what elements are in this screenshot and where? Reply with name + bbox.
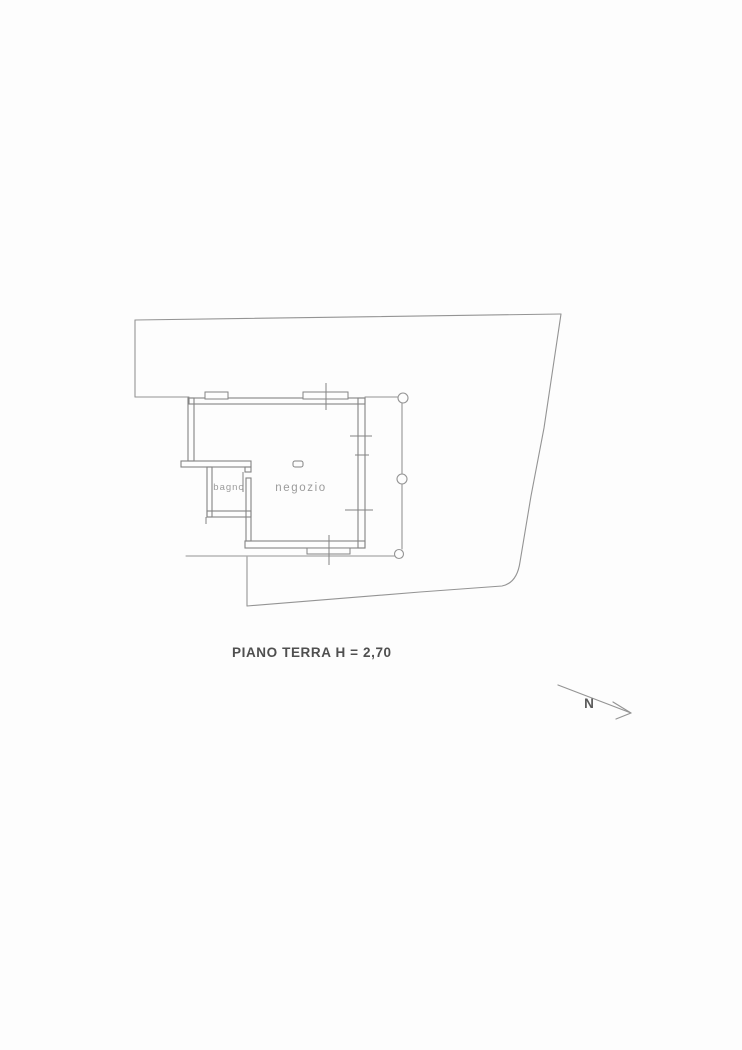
boundary-right-and-bottom-edge — [247, 314, 561, 606]
room-label-negozio: negozio — [275, 482, 326, 494]
wall-bagno-bottom — [207, 511, 251, 517]
pillar-symbol — [293, 461, 303, 467]
north-label: N — [584, 696, 594, 711]
wall-right — [358, 398, 365, 548]
property-boundary — [135, 314, 561, 606]
room-label-bagno: bagno — [213, 482, 244, 493]
porch-column-middle — [397, 474, 407, 484]
porch-outline — [365, 393, 408, 559]
floor-plan-canvas: bagno negozio PIANO TERRA H = 2,70 N — [0, 0, 742, 1050]
building-walls — [181, 398, 365, 548]
wall-bottom — [245, 541, 365, 548]
porch-column-top — [398, 393, 408, 403]
plan-caption: PIANO TERRA H = 2,70 — [232, 645, 392, 660]
wall-mid-horizontal — [181, 461, 251, 467]
scanned-floor-plan-page: bagno negozio PIANO TERRA H = 2,70 N — [0, 0, 742, 1050]
openings — [205, 383, 373, 565]
porch-column-bottom — [395, 550, 404, 559]
wall-lower-left — [246, 478, 251, 541]
north-arrow-head — [613, 702, 631, 719]
window-top-left — [205, 392, 228, 399]
wall-bagno-left — [207, 467, 212, 517]
north-arrow-icon: N — [558, 685, 631, 719]
boundary-top-edge — [135, 314, 561, 320]
wall-upper-left — [188, 398, 194, 461]
north-arrow-shaft — [558, 685, 631, 713]
room-labels: bagno negozio — [213, 482, 326, 494]
wall-door-stub — [245, 467, 251, 472]
